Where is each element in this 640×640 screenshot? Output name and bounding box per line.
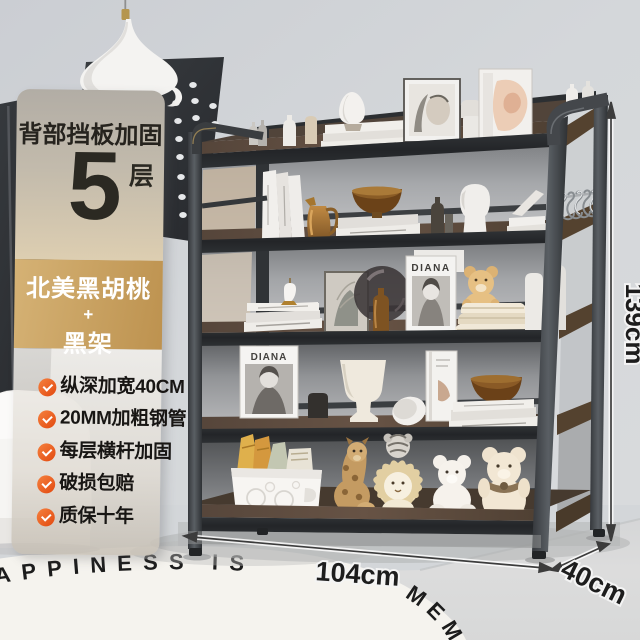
svg-text:104cm: 104cm	[315, 556, 401, 592]
svg-text:DIANA: DIANA	[411, 263, 450, 274]
svg-text:DIANA: DIANA	[251, 352, 288, 363]
svg-text:139cm: 139cm	[620, 284, 640, 365]
